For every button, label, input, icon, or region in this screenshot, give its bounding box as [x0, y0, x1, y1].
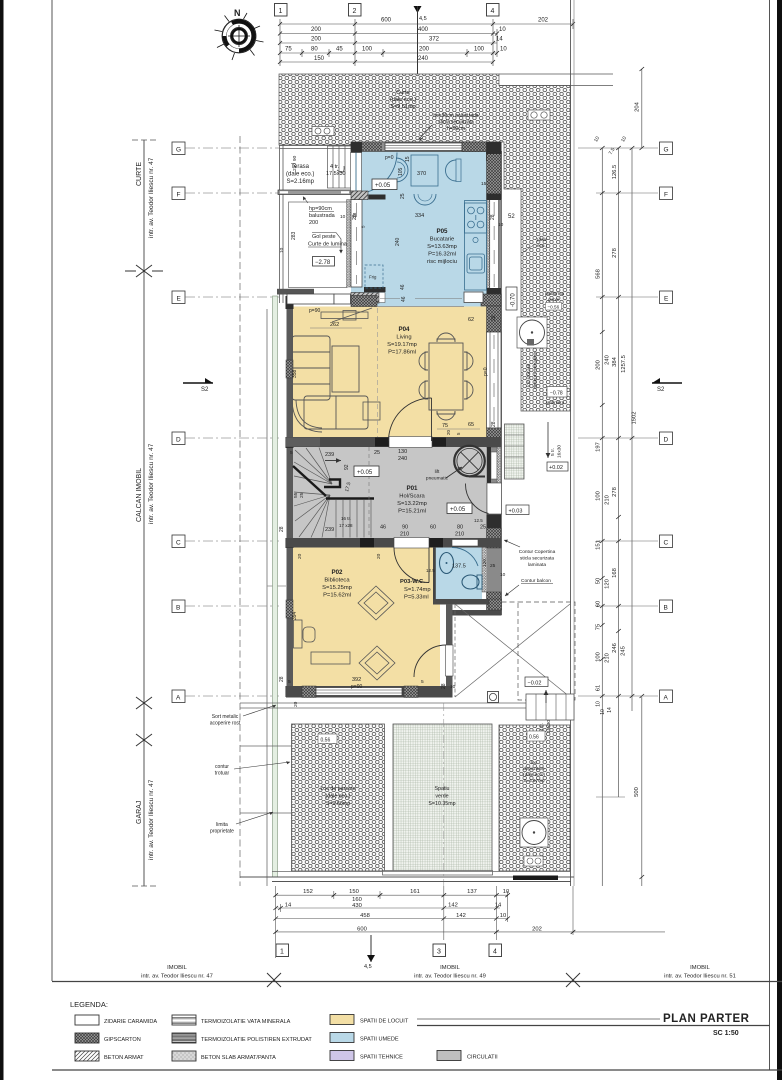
svg-text:B: B: [664, 605, 668, 612]
svg-text:28: 28: [491, 421, 497, 427]
svg-text:+0.02: +0.02: [549, 465, 563, 471]
svg-text:ZIDARIE CARAMIDA: ZIDARIE CARAMIDA: [104, 1019, 157, 1025]
svg-text:126.5: 126.5: [612, 165, 618, 180]
svg-text:120: 120: [482, 559, 488, 567]
svg-text:15: 15: [481, 181, 487, 187]
svg-text:10: 10: [498, 222, 504, 228]
svg-text:D: D: [664, 437, 669, 444]
svg-text:balustrada: balustrada: [309, 213, 336, 219]
svg-text:−2.78: −2.78: [315, 260, 331, 266]
svg-text:12.5: 12.5: [426, 568, 435, 573]
svg-text:intr. av. Teodor Iliescu nr. 4: intr. av. Teodor Iliescu nr. 49: [414, 974, 486, 980]
svg-text:risc mijlociu: risc mijlociu: [427, 259, 457, 265]
svg-text:458: 458: [360, 913, 370, 919]
svg-text:Hol/Scara: Hol/Scara: [399, 494, 425, 500]
svg-text:S=9.51mp: S=9.51mp: [390, 104, 415, 110]
svg-text:14: 14: [607, 707, 613, 713]
svg-text:246: 246: [612, 643, 618, 653]
svg-text:B: B: [176, 605, 180, 612]
svg-text:intr. av. Teodor Iliescu nr. 5: intr. av. Teodor Iliescu nr. 51: [664, 974, 736, 980]
svg-text:202: 202: [532, 926, 542, 932]
svg-text:283: 283: [291, 231, 297, 240]
svg-text:120: 120: [605, 579, 611, 589]
svg-text:210: 210: [455, 532, 464, 538]
svg-text:430: 430: [352, 903, 362, 909]
svg-text:55: 55: [293, 492, 299, 498]
svg-text:platforma: platforma: [545, 291, 565, 296]
svg-text:394: 394: [292, 611, 298, 620]
svg-text:200: 200: [309, 220, 318, 226]
svg-text:TERMOIZOLATIE POLISTIREN EXTRU: TERMOIZOLATIE POLISTIREN EXTRUDAT: [201, 1037, 312, 1043]
svg-text:62: 62: [468, 317, 474, 323]
svg-text:sticla securizata: sticla securizata: [438, 120, 474, 126]
svg-text:17.5x30: 17.5x30: [326, 171, 346, 177]
svg-text:10: 10: [503, 889, 509, 895]
svg-text:100: 100: [596, 491, 602, 501]
svg-text:5: 5: [421, 679, 424, 685]
svg-text:161: 161: [410, 889, 420, 895]
svg-text:limita: limita: [216, 822, 228, 828]
svg-text:G: G: [176, 147, 181, 154]
svg-text:CURTE: CURTE: [136, 162, 143, 186]
svg-text:105: 105: [398, 167, 404, 176]
svg-text:152: 152: [303, 889, 313, 895]
svg-text:-0.70: -0.70: [511, 293, 517, 307]
svg-text:14: 14: [495, 903, 502, 909]
svg-text:10: 10: [279, 247, 285, 253]
svg-text:384: 384: [612, 356, 618, 366]
svg-text:142: 142: [448, 903, 458, 909]
svg-text:10: 10: [500, 47, 507, 53]
svg-text:D: D: [176, 437, 181, 444]
svg-text:S=19.17mp: S=19.17mp: [387, 342, 417, 348]
svg-text:A: A: [664, 695, 669, 702]
svg-text:Gol peste: Gol peste: [312, 234, 336, 240]
svg-text:(dale: (dale: [537, 237, 548, 242]
svg-text:C: C: [664, 540, 669, 547]
svg-text:1502: 1502: [632, 412, 638, 425]
svg-text:S=2.16mp: S=2.16mp: [287, 179, 315, 185]
svg-text:proprietate: proprietate: [210, 829, 234, 835]
svg-text:Frig: Frig: [369, 275, 377, 280]
svg-text:240: 240: [398, 456, 407, 462]
svg-text:intr. av. Teodor Iliescu nr. 4: intr. av. Teodor Iliescu nr. 47: [148, 779, 155, 860]
svg-text:372: 372: [429, 37, 440, 43]
svg-text:262: 262: [330, 322, 339, 328]
svg-text:17 x28: 17 x28: [339, 523, 353, 528]
svg-text:100: 100: [362, 47, 373, 53]
svg-text:20: 20: [293, 701, 299, 707]
svg-text:P02: P02: [331, 569, 343, 576]
svg-text:160: 160: [352, 897, 362, 903]
svg-text:h=90cm: h=90cm: [447, 126, 465, 132]
svg-text:239: 239: [325, 452, 334, 458]
svg-text:Loc de parcare: Loc de parcare: [320, 786, 355, 792]
svg-text:28: 28: [279, 526, 285, 532]
svg-text:P05: P05: [436, 228, 448, 235]
svg-text:P=15.62ml: P=15.62ml: [323, 593, 351, 599]
svg-text:S=1.74mp: S=1.74mp: [404, 587, 431, 593]
svg-text:intr. av. Teodor Iliescu nr. 4: intr. av. Teodor Iliescu nr. 47: [141, 974, 213, 980]
svg-text:16 tr.: 16 tr.: [341, 516, 351, 521]
svg-text:200: 200: [311, 37, 322, 43]
svg-text:202: 202: [538, 18, 549, 24]
svg-text:+0.05: +0.05: [357, 470, 373, 476]
svg-text:trotuar: trotuar: [215, 771, 230, 777]
svg-text:10: 10: [500, 913, 506, 919]
svg-text:200: 200: [419, 47, 430, 53]
svg-text:IMOBIL: IMOBIL: [690, 965, 710, 971]
svg-text:Curte de lumina: Curte de lumina: [308, 242, 348, 248]
svg-text:90: 90: [402, 525, 408, 531]
svg-text:28: 28: [279, 676, 285, 682]
svg-text:P=15.21ml: P=15.21ml: [398, 509, 426, 515]
svg-text:28: 28: [491, 315, 497, 321]
svg-text:S=13.63mp: S=13.63mp: [427, 244, 457, 250]
svg-text:15x30: 15x30: [546, 720, 552, 733]
svg-text:60: 60: [596, 601, 602, 607]
svg-text:−0.02: −0.02: [528, 681, 542, 687]
svg-text:pneumatic: pneumatic: [426, 476, 449, 482]
svg-text:S=10.35mp: S=10.35mp: [428, 801, 455, 807]
svg-text:CIRCULATII: CIRCULATII: [467, 1055, 498, 1061]
svg-text:(dale eco.): (dale eco.): [286, 172, 314, 178]
svg-text:28: 28: [441, 683, 447, 689]
svg-text:80: 80: [311, 47, 318, 53]
svg-text:LEGENDA:: LEGENDA:: [70, 1000, 108, 1009]
svg-text:100: 100: [474, 47, 485, 53]
svg-text:25: 25: [400, 193, 406, 199]
svg-text:10: 10: [500, 572, 506, 578]
svg-text:contur: contur: [215, 764, 229, 770]
svg-text:210: 210: [400, 532, 409, 538]
svg-text:200: 200: [311, 27, 322, 33]
svg-text:Curte: Curte: [396, 90, 409, 96]
svg-text:0.56: 0.56: [321, 738, 331, 744]
svg-text:370: 370: [417, 171, 426, 177]
svg-text:G: G: [664, 147, 669, 154]
svg-text:4 tr.: 4 tr.: [330, 164, 340, 170]
svg-text:75: 75: [596, 624, 602, 630]
svg-text:P=5.33ml: P=5.33ml: [404, 595, 429, 601]
svg-text:IMOBIL: IMOBIL: [167, 965, 187, 971]
svg-text:S2: S2: [657, 387, 665, 393]
svg-text:p=0: p=0: [483, 367, 489, 376]
svg-text:F: F: [177, 192, 181, 199]
svg-text:90: 90: [292, 155, 298, 161]
svg-text:jardiniera: jardiniera: [545, 400, 565, 405]
svg-text:20: 20: [376, 553, 382, 559]
svg-text:46: 46: [401, 296, 407, 302]
svg-text:depozitare: depozitare: [523, 766, 545, 771]
svg-text:verde: verde: [435, 794, 448, 800]
svg-text:intr. av. Teodor Iliescu nr. 4: intr. av. Teodor Iliescu nr. 47: [148, 443, 155, 524]
svg-text:28: 28: [490, 214, 496, 220]
svg-text:IMOBIL: IMOBIL: [440, 965, 460, 971]
svg-text:S=15.25mp: S=15.25mp: [322, 585, 352, 591]
svg-text:65: 65: [468, 422, 474, 428]
svg-text:4: 4: [493, 949, 497, 956]
svg-text:210: 210: [292, 163, 298, 171]
svg-text:16x30: 16x30: [557, 445, 563, 458]
svg-text:lift: lift: [435, 469, 440, 475]
svg-text:Living: Living: [396, 335, 411, 341]
svg-text:5: 5: [288, 679, 291, 685]
svg-text:10: 10: [596, 701, 602, 707]
svg-text:Biblioteca: Biblioteca: [324, 578, 350, 584]
svg-text:46: 46: [380, 525, 386, 531]
svg-text:3: 3: [437, 949, 441, 956]
svg-text:sticla securizata: sticla securizata: [520, 556, 554, 562]
svg-text:150: 150: [349, 889, 359, 895]
svg-text:hp=90cm: hp=90cm: [309, 206, 332, 212]
svg-text:gunoi: gunoi: [548, 297, 559, 302]
svg-text:S=9.66mp: S=9.66mp: [326, 801, 350, 807]
svg-text:52: 52: [508, 214, 515, 220]
svg-text:CALCAN IMOBIL: CALCAN IMOBIL: [136, 468, 143, 522]
svg-text:SC 1:50: SC 1:50: [713, 1030, 739, 1037]
svg-text:C: C: [176, 540, 181, 547]
svg-text:GIPSCARTON: GIPSCARTON: [104, 1037, 141, 1043]
svg-text:130: 130: [398, 449, 407, 455]
svg-text:61: 61: [596, 685, 602, 691]
svg-text:358: 358: [292, 369, 298, 378]
svg-text:204: 204: [635, 101, 641, 111]
svg-text:1257.5: 1257.5: [621, 355, 627, 373]
svg-text:239: 239: [325, 527, 334, 533]
svg-text:240: 240: [605, 355, 611, 365]
svg-text:(dale eco.): (dale eco.): [325, 794, 350, 800]
svg-text:p=0: p=0: [385, 155, 394, 161]
svg-text:E: E: [664, 296, 669, 303]
svg-text:BETON ARMAT: BETON ARMAT: [104, 1055, 144, 1061]
svg-text:10: 10: [340, 214, 346, 220]
svg-text:1: 1: [280, 949, 284, 956]
svg-text:25: 25: [480, 525, 486, 531]
svg-text:168: 168: [612, 568, 618, 578]
svg-text:N: N: [234, 8, 241, 18]
svg-text:A: A: [176, 695, 181, 702]
svg-text:4 tr.: 4 tr.: [539, 723, 545, 731]
svg-text:SPATII DE LOCUIT: SPATII DE LOCUIT: [360, 1019, 409, 1025]
svg-text:eco.): eco.): [537, 243, 548, 248]
svg-text:14: 14: [285, 903, 292, 909]
svg-text:5 tr.: 5 tr.: [550, 448, 556, 456]
svg-text:197: 197: [596, 442, 602, 452]
svg-text:568: 568: [596, 269, 602, 279]
svg-text:P03-W.C.: P03-W.C.: [400, 579, 425, 585]
svg-text:P=17.86ml: P=17.86ml: [388, 350, 416, 356]
svg-text:−0.78: −0.78: [550, 391, 563, 397]
svg-text:P01: P01: [406, 485, 418, 492]
svg-text:acoperire rost: acoperire rost: [210, 721, 241, 727]
svg-text:600: 600: [381, 18, 392, 24]
svg-text:Contur balcon: Contur balcon: [521, 578, 551, 584]
svg-text:E: E: [177, 296, 182, 303]
svg-text:Bucatarie: Bucatarie: [430, 237, 455, 243]
svg-text:+0.05: +0.05: [375, 183, 391, 189]
svg-text:1: 1: [279, 8, 283, 15]
svg-text:210: 210: [605, 653, 611, 663]
svg-text:20: 20: [297, 553, 303, 559]
svg-text:20: 20: [446, 429, 451, 435]
svg-text:12.5: 12.5: [474, 518, 483, 523]
svg-text:GARAJ: GARAJ: [136, 801, 143, 824]
svg-text:TERMOIZOLATIE VATA MINERALA: TERMOIZOLATIE VATA MINERALA: [201, 1019, 291, 1025]
svg-text:10: 10: [600, 709, 606, 715]
svg-text:150: 150: [314, 56, 325, 62]
svg-text:600: 600: [357, 926, 367, 932]
svg-text:151: 151: [596, 540, 602, 550]
svg-text:P=16.32ml: P=16.32ml: [428, 252, 456, 258]
svg-text:intr. av. Teodor Iliescu nr. 4: intr. av. Teodor Iliescu nr. 47: [148, 157, 155, 238]
svg-text:5: 5: [290, 450, 293, 456]
svg-text:deseuri menajere: deseuri menajere: [533, 352, 539, 389]
svg-text:142: 142: [456, 913, 466, 919]
svg-text:(dale eco.): (dale eco.): [523, 772, 545, 777]
svg-text:15: 15: [405, 156, 411, 162]
svg-text:Sort metalic: Sort metalic: [212, 714, 239, 720]
svg-text:210: 210: [605, 495, 611, 505]
svg-text:137.5: 137.5: [452, 564, 466, 570]
svg-text:PLAN PARTER: PLAN PARTER: [663, 1013, 750, 1025]
svg-text:BETON SLAB ARMAT/PANTA: BETON SLAB ARMAT/PANTA: [201, 1055, 276, 1061]
svg-text:S=4.67mp: S=4.67mp: [523, 778, 545, 783]
svg-text:80: 80: [457, 525, 463, 531]
svg-text:Contur Copertina: Contur Copertina: [519, 549, 556, 555]
svg-text:P04: P04: [398, 326, 410, 333]
svg-text:p=90: p=90: [351, 684, 362, 690]
svg-text:2: 2: [353, 8, 357, 15]
svg-text:Spatiu: Spatiu: [434, 786, 449, 792]
svg-text:4,5: 4,5: [364, 964, 372, 970]
svg-text:p=90: p=90: [309, 308, 320, 314]
svg-text:10: 10: [450, 684, 456, 690]
svg-text:S2: S2: [201, 387, 209, 393]
svg-text:25: 25: [490, 563, 496, 569]
svg-text:14: 14: [496, 37, 503, 43]
svg-text:0.56: 0.56: [529, 735, 539, 741]
svg-text:F: F: [664, 192, 668, 199]
svg-text:137: 137: [467, 889, 477, 895]
svg-text:50: 50: [596, 578, 602, 584]
svg-text:92: 92: [344, 464, 350, 470]
svg-text:278: 278: [612, 487, 618, 497]
svg-text:SPATII TEHNICE: SPATII TEHNICE: [360, 1055, 403, 1061]
svg-text:500: 500: [634, 787, 640, 797]
svg-text:25: 25: [299, 492, 305, 498]
svg-text:60: 60: [430, 525, 436, 531]
svg-text:334: 334: [415, 213, 424, 219]
svg-text:100: 100: [596, 652, 602, 662]
svg-text:loc: loc: [531, 760, 538, 765]
svg-text:46: 46: [400, 284, 406, 290]
svg-text:hc=30cm balustrada: hc=30cm balustrada: [433, 113, 478, 119]
svg-text:laminata: laminata: [528, 562, 546, 568]
svg-text:245: 245: [621, 646, 627, 656]
svg-text:4,5: 4,5: [419, 16, 427, 22]
svg-text:75: 75: [442, 423, 448, 429]
svg-text:−0.56: −0.56: [548, 305, 560, 310]
svg-text:400: 400: [418, 27, 429, 33]
svg-text:392: 392: [352, 677, 361, 683]
svg-text:25: 25: [374, 450, 380, 456]
svg-text:75: 75: [285, 47, 292, 53]
svg-text:10: 10: [499, 27, 506, 33]
svg-text:SPATII UMEDE: SPATII UMEDE: [360, 1037, 399, 1043]
svg-text:200: 200: [596, 360, 602, 370]
svg-text:278: 278: [612, 248, 618, 258]
svg-text:45: 45: [336, 47, 343, 53]
svg-text:S=13.22mp: S=13.22mp: [397, 501, 427, 507]
svg-text:+0.05: +0.05: [450, 507, 466, 513]
svg-text:28: 28: [352, 212, 358, 218]
svg-text:(dale eco.): (dale eco.): [390, 97, 416, 103]
svg-text:4: 4: [491, 8, 495, 15]
svg-text:+0.03: +0.03: [509, 509, 523, 515]
svg-text:240: 240: [395, 237, 401, 246]
svg-text:240: 240: [418, 56, 429, 62]
svg-text:loc stocare: loc stocare: [526, 363, 532, 387]
